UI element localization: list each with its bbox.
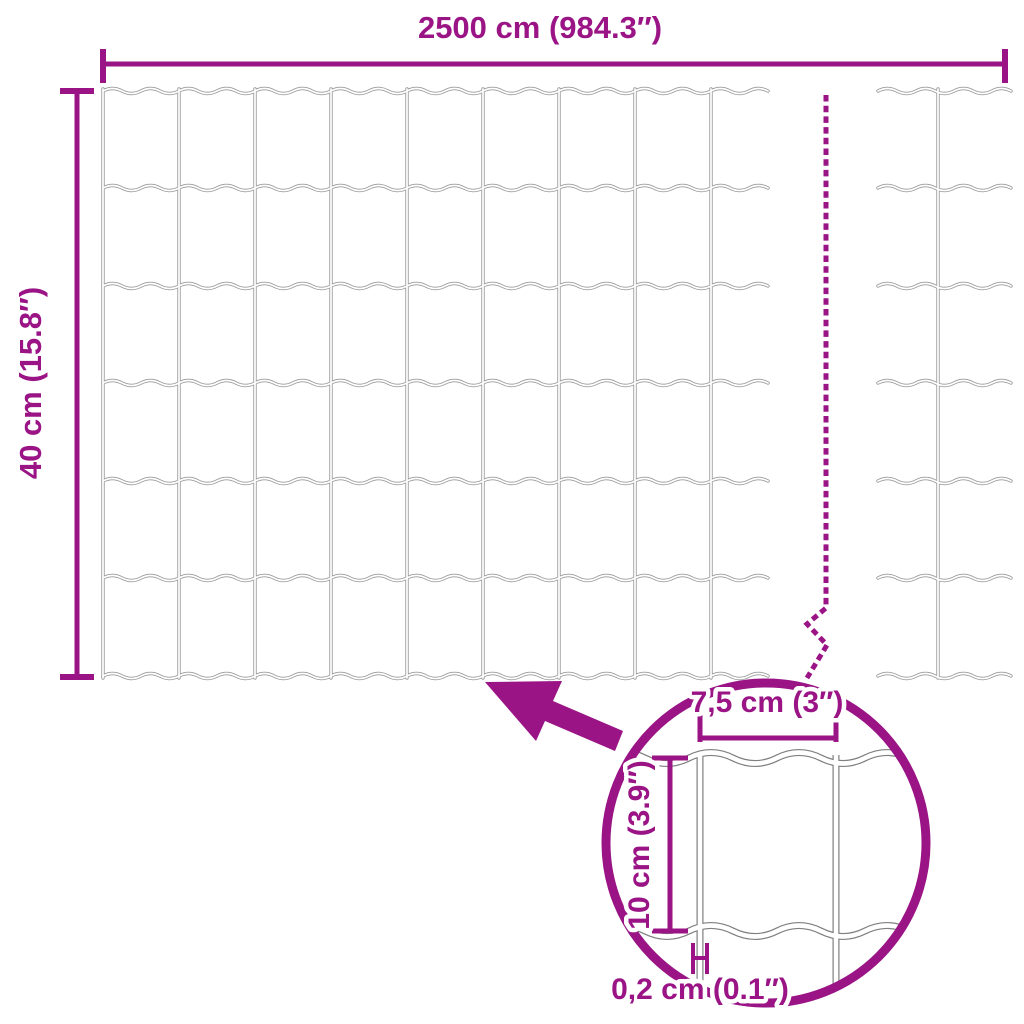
fence-mesh-right-fragment [878,89,1011,679]
length-break-dashed-line-icon [807,95,827,678]
detail-pointer-arrow-icon [485,681,623,751]
detail-mesh-height-dimension: 10 cm (3.9″) [623,758,688,931]
detail-height-label: 10 cm (3.9″) [623,760,656,929]
fence-dimension-diagram: 2500 cm (984.3″) 40 cm (15.8″) 7,5 cm (3… [0,0,1024,1024]
width-dimension-label: 2500 cm (984.3″) [418,10,662,45]
height-dimension-label: 40 cm (15.8″) [13,287,48,479]
detail-width-label: 7,5 cm (3″) [691,686,844,719]
width-dimension: 2500 cm (984.3″) [103,10,1005,83]
detail-view: 7,5 cm (3″) 10 cm (3.9″) 0,2 cm (0.1″) [601,683,953,1010]
wire-thickness-label: 0,2 cm (0.1″) [611,973,789,1006]
detail-mesh-width-dimension: 7,5 cm (3″) [691,686,844,742]
height-dimension: 40 cm (15.8″) [13,91,94,677]
fence-mesh-main-panel [103,89,768,679]
diagram-canvas: 2500 cm (984.3″) 40 cm (15.8″) 7,5 cm (3… [0,0,1024,1024]
